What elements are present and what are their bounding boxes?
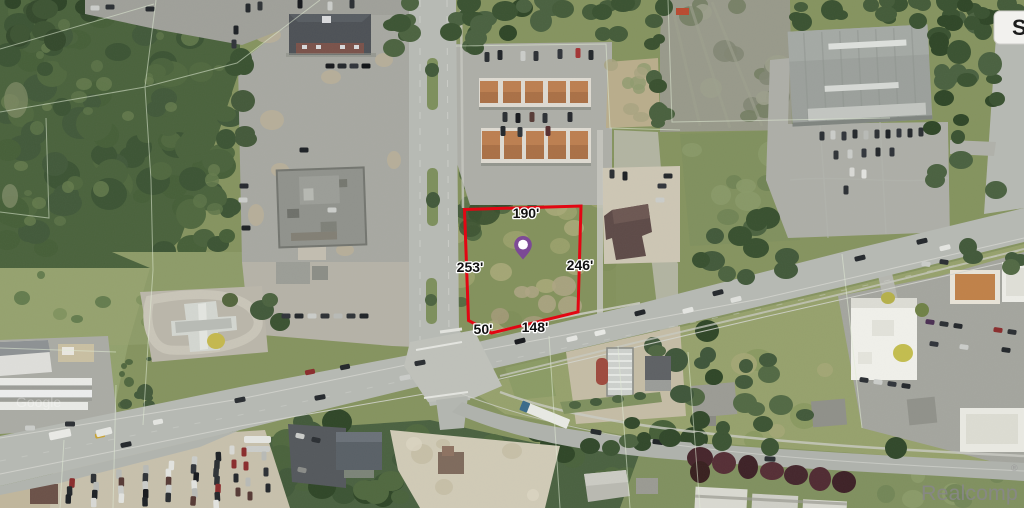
- svg-text:50': 50': [474, 321, 493, 337]
- svg-text:®: ®: [1011, 463, 1018, 473]
- svg-text:253': 253': [457, 259, 484, 275]
- svg-text:Google: Google: [16, 394, 61, 410]
- svg-text:Realcomp: Realcomp: [921, 481, 1018, 505]
- svg-text:S.: S.: [1012, 15, 1024, 40]
- svg-text:246': 246': [567, 257, 594, 273]
- svg-text:148': 148': [522, 319, 549, 335]
- svg-text:190': 190': [513, 205, 540, 221]
